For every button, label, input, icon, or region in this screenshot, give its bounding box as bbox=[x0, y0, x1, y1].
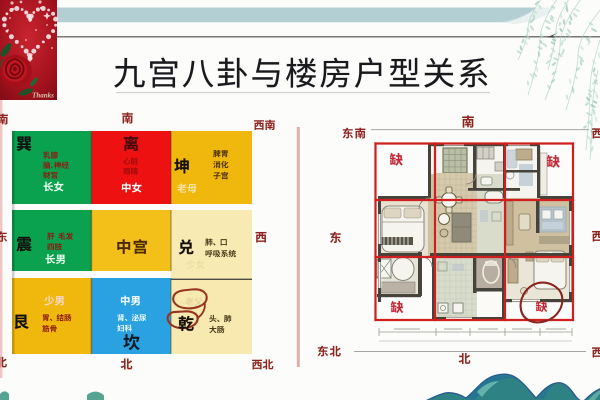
svg-text:Thanks: Thanks bbox=[32, 92, 54, 100]
